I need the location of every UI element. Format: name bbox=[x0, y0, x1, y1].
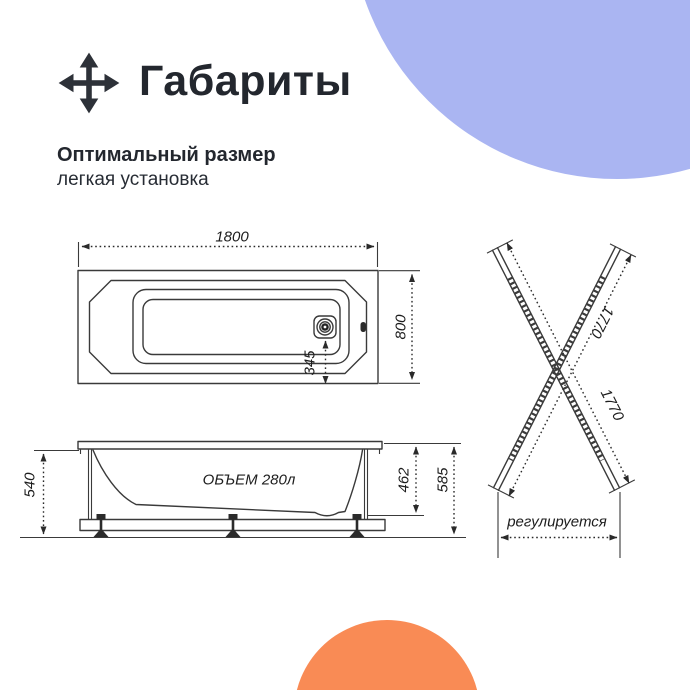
dim-label-total-height: 585 bbox=[435, 467, 452, 492]
dim-label-length: 1800 bbox=[215, 229, 248, 246]
volume-label: ОБЪЕМ 280л bbox=[203, 472, 296, 489]
dim-label-inner-height: 462 bbox=[396, 467, 413, 492]
technical-drawing bbox=[0, 0, 690, 690]
overflow-mark bbox=[361, 322, 367, 332]
bathtub-top-view bbox=[78, 242, 420, 384]
dim-label-drain-offset: 345 bbox=[302, 350, 319, 375]
dim-label-width: 800 bbox=[393, 314, 410, 339]
dimension-infographic: Габариты Оптимальный размер легкая устан… bbox=[0, 0, 690, 690]
adjustable-label: регулируется bbox=[507, 514, 607, 531]
drain-symbol bbox=[314, 316, 336, 338]
dim-label-height: 540 bbox=[22, 472, 39, 497]
